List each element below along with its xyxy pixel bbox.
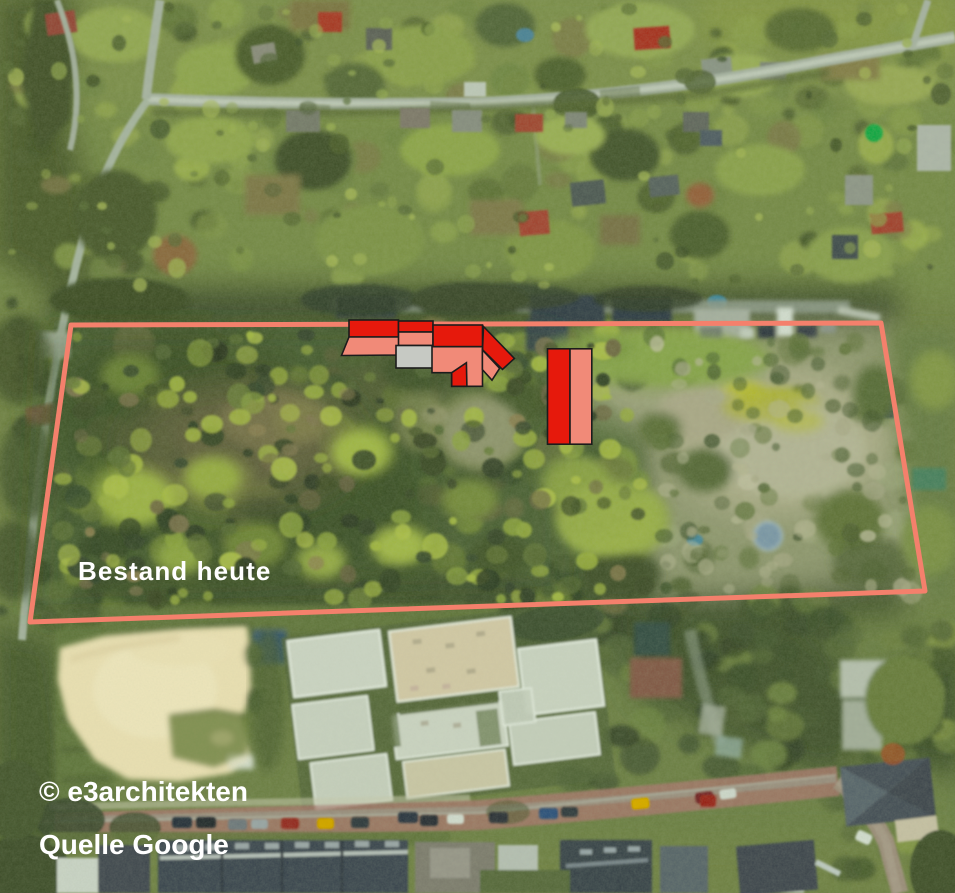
svg-text:© e3architekten: © e3architekten [39, 776, 248, 807]
svg-text:Quelle Google: Quelle Google [39, 829, 229, 860]
svg-text:Bestand heute: Bestand heute [78, 556, 271, 586]
